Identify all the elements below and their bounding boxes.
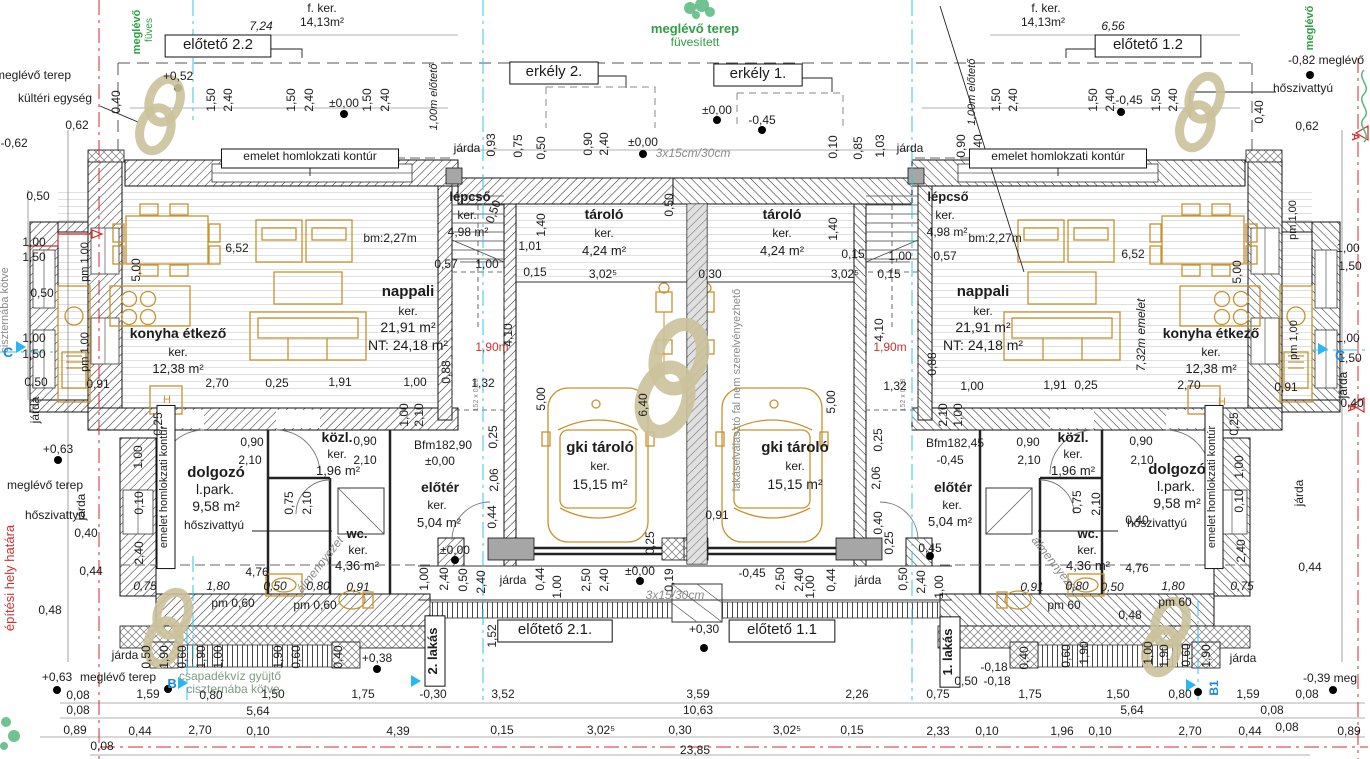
dim-label: 0,50 (30, 286, 54, 300)
dim-label: 0,62 (65, 118, 89, 132)
dim-label: 0,93 (484, 133, 498, 157)
dim-label: 2,10 (1130, 453, 1154, 467)
level: -0,18 (983, 674, 1011, 688)
dim-label: 1,00 (397, 403, 411, 427)
dim-label: 1,32 (883, 379, 907, 393)
dim-label: 1,00 (550, 575, 564, 599)
dim-label: 0,48 (1118, 608, 1142, 622)
room-label: lépcső (449, 189, 490, 204)
level: ±0,00 (625, 564, 655, 578)
axis-marker: A (1349, 133, 1361, 141)
dim-label: 1,50 (1086, 88, 1100, 112)
room-label: dolgozó (187, 464, 244, 481)
dim-label: 2,10 (1017, 453, 1041, 467)
dim-label: 2,10 (300, 491, 314, 515)
dim-label: 2,70 (188, 723, 212, 737)
dim-label: 2,70 (205, 376, 229, 390)
dim-label: 1,00 (417, 567, 431, 591)
dim-label: 0,25 (882, 531, 896, 555)
dim-label: 1,00 (22, 331, 46, 345)
note: építési hely határa (2, 524, 17, 631)
roof-area-value: 14,13m² (1021, 15, 1065, 29)
dim-label: 1,52 (485, 624, 499, 648)
dim-label: 2,40 (597, 568, 611, 592)
dim-label: 0,44 (533, 567, 547, 591)
dim-label: 0,60 (1179, 643, 1193, 667)
dim-label: 0,91 (705, 508, 729, 522)
room-label: lépcső (927, 189, 968, 204)
dim-label: 1,00 (1336, 241, 1360, 255)
dim-label: 2,40 (1166, 88, 1180, 112)
dim-label: 1,50 (989, 88, 1003, 112)
dim-label: 0,90 (581, 132, 595, 156)
dim-label: 0,08 (1260, 703, 1284, 717)
room-label: közl. (1057, 429, 1088, 445)
dim-label: 0,08 (66, 703, 90, 717)
level: -0,45 (936, 453, 964, 467)
callout: emelet homlokzati kontúr (243, 149, 376, 163)
dim-label: 0,25 (871, 428, 885, 452)
note: járda (854, 573, 882, 587)
dim-label: 1,00 (932, 575, 946, 599)
dim-label: 0,75 (1070, 490, 1084, 514)
room-ker: ker. (1201, 345, 1220, 359)
dim-label: 3,02⁵ (773, 723, 801, 737)
level: -0,30 (419, 687, 447, 701)
dim-label: 5,00 (129, 258, 143, 282)
dim-label: 0,88 (925, 352, 939, 376)
level: Bfm182,45 (926, 436, 984, 450)
dim-label: 1,00 (403, 375, 427, 389)
room-ker: ker. (772, 226, 791, 240)
dim-label: 2,10 (353, 453, 377, 467)
dim-label: 0,90 (353, 434, 377, 448)
dim-label: 2,10 (936, 403, 950, 427)
dim-label: 7,24 (249, 19, 273, 33)
dim-label: 1,50 (284, 88, 298, 112)
room-area: 5,04 m² (928, 514, 973, 529)
dim-label: 3,02⁵ (831, 267, 859, 281)
room-area: 4,24 m² (582, 243, 627, 258)
dim-label: pm 1,00 (1288, 320, 1300, 360)
dim-label: 5,64 (246, 704, 270, 718)
dim-label: 0,60 (289, 645, 303, 669)
dim-label: 4,10 (872, 318, 886, 342)
dim-label: 0,80 (1065, 579, 1089, 593)
dim-label: 1,91 (1043, 378, 1067, 392)
dim-label: 0,10 (246, 724, 270, 738)
dim-label: 0,57 (933, 249, 957, 263)
dim-label: 2,70 (1178, 724, 1202, 738)
dim-label: 0,60 (175, 645, 189, 669)
room-area: NT: 24,18 m² (943, 337, 1023, 353)
dim-label: 0,10 (132, 491, 146, 515)
dim-label: 6,40 (636, 393, 650, 417)
note: járda (28, 396, 42, 424)
room-label: wc. (1077, 526, 1099, 541)
dim-label: 0,91 (1274, 380, 1298, 394)
dim-label: 1,50 (360, 88, 374, 112)
dim-label: 0,80 (1168, 687, 1192, 701)
dim-label: 2,40 (132, 541, 146, 565)
axis-marker: C (1335, 347, 1345, 363)
dim-label: 0,40 (871, 511, 885, 535)
note: járda (1229, 651, 1257, 665)
dim-label: 4,76 (245, 565, 269, 579)
room-area: 9,58 m² (1153, 495, 1201, 511)
note: kültéri egység (18, 91, 92, 105)
dim-label: 0,90 (954, 134, 968, 158)
room-area: 21,91 m² (955, 319, 1011, 335)
dim-label: 1,80 (1161, 579, 1185, 593)
dim-label: 2,70 (1177, 378, 1201, 392)
dim-label: 2,10 (238, 453, 262, 467)
room-label: gki tároló (761, 439, 829, 456)
note: ciszternába kötve (0, 267, 11, 353)
dim-label: 0,10 (1088, 724, 1112, 738)
dim-label: 2,06 (487, 468, 501, 492)
room-label: dolgozó (1148, 461, 1205, 478)
dim-label: 2,40 (1006, 88, 1020, 112)
dim-label: 0,48 (38, 603, 62, 617)
level: -0,82 meglévő (1288, 53, 1364, 67)
room-area: 12,38 m² (1185, 361, 1237, 376)
level: ±0,00 (329, 96, 359, 110)
dim-label: 0,91 (86, 377, 110, 391)
dim-label: 0,15 (877, 267, 901, 281)
note: bm:2,27m (363, 231, 416, 245)
dim-label: 0,90 (1016, 435, 1040, 449)
dim-label: 0,88 (439, 360, 453, 384)
room-ker: ker. (973, 304, 992, 318)
dim-label: pm 60 (1158, 595, 1192, 609)
level: ±0,00 (425, 454, 455, 468)
dim-label: 1,90 (194, 645, 208, 669)
dim-label: 1,75 (351, 687, 375, 701)
dim-label: 0,50 (954, 674, 978, 688)
callout: előtető 2.1. (518, 621, 592, 638)
room-label: előtér (934, 479, 973, 495)
level: +0,30 (689, 622, 720, 636)
dim-label: 1,03 (873, 134, 887, 158)
dim-label: 1,32 (471, 376, 495, 390)
dim-label: 0,15 (523, 265, 547, 279)
dim-label: 0,44 (1298, 560, 1322, 574)
dim-label: 5,00 (534, 387, 548, 411)
dim-label: 1,80 (206, 579, 230, 593)
room-area: 21,91 m² (380, 319, 436, 335)
dim-label: 5,64 (1120, 703, 1144, 717)
note: füvesített (671, 35, 720, 49)
callout: előtető 2.2 (183, 36, 253, 53)
room-area: 1,96 m² (1051, 463, 1096, 478)
note: bm:2,27m (968, 231, 1021, 245)
floor-plan-sheet: f. ker.14,13m²7,24előtető 2.2meglévőfüve… (0, 0, 1370, 759)
dim-label: 0,75 (926, 687, 950, 701)
dim-label: 0,08 (66, 688, 90, 702)
dim-label: 0,30 (698, 267, 722, 281)
dim-label: 0,25 (1074, 378, 1098, 392)
dim-label: 0,40 (1252, 100, 1266, 124)
room-ker: ker. (457, 208, 476, 222)
level: 1,90m (873, 340, 906, 354)
dim-label: 0,40 (1017, 646, 1031, 670)
dim-label: 23,85 (680, 743, 710, 757)
dim-label: 0,50 (662, 193, 676, 217)
room-ker: ker. (935, 208, 954, 222)
callout: emelet homlokzati kontúr (991, 149, 1124, 163)
room-label: előtér (421, 479, 460, 495)
dim-label: 1,00 (22, 235, 46, 249)
level: -0,62 (0, 136, 28, 150)
dim-label: pm 60 (1047, 598, 1081, 612)
level: -0,45 (748, 113, 776, 127)
dim-label: 2,40 (221, 88, 235, 112)
dim-label: 0,10 (826, 135, 840, 159)
dim-label: 0,62 (1295, 119, 1319, 133)
room-ker: ker. (1077, 543, 1096, 557)
dim-label: 4,76 (1125, 561, 1149, 575)
dim-label: 2,40 (437, 567, 451, 591)
dim-label: 1,96 (1050, 724, 1074, 738)
room-ker: ker. (1063, 447, 1082, 461)
dim-label: 1,90 (1199, 644, 1213, 668)
dim-label: 0,91 (346, 580, 369, 594)
dim-label: 5,00 (824, 390, 838, 414)
axis-marker: A (1345, 404, 1357, 412)
dim-label: 0,85 (851, 136, 865, 160)
level: ±0,00 (702, 103, 732, 117)
roof-area-value: 14,13m² (300, 15, 344, 29)
dim-label: 1,59 (1236, 687, 1260, 701)
dim-label: 5,00 (1230, 260, 1244, 284)
note: járda (111, 648, 139, 662)
callout: erkély 1. (730, 65, 787, 82)
dim-label: 0,80 (306, 579, 330, 593)
dim-label: 1,50 (22, 347, 46, 361)
dim-label: 0,15 (490, 723, 514, 737)
room-area: 4,98 m² (448, 225, 489, 239)
dim-label: pm 1,00 (79, 332, 91, 372)
room-ker: ker. (590, 459, 609, 473)
dim-label: 1,59 (136, 687, 160, 701)
level: -0,45 (1115, 93, 1143, 107)
room-area: 4,24 m² (760, 243, 805, 258)
room-area: 4,98 m² (927, 225, 968, 239)
dim-label: 0,75 (133, 579, 157, 593)
room-label: tároló (763, 206, 802, 222)
dim-label: 2,06 (869, 466, 883, 490)
note: járda (896, 141, 924, 155)
callout: emelet homlokzati kontúr (158, 426, 170, 549)
dim-label: 0,50 (534, 136, 548, 160)
room-ker: ker. (398, 304, 417, 318)
note: meglévő terep (7, 478, 83, 492)
dim-label: 10,63 (683, 703, 713, 717)
room-label: konyha étkező (1163, 325, 1259, 341)
dim-label: 0,50 (26, 189, 50, 203)
dim-label: 0,08 (1275, 720, 1299, 734)
dim-label: 2,10 (1089, 492, 1103, 516)
dim-label: 2,26 (845, 687, 869, 701)
room-label: tároló (585, 206, 624, 222)
callout: erkély 2. (526, 63, 583, 80)
axis-marker: C (3, 344, 13, 360)
room-area: 15,15 m² (572, 476, 628, 492)
axis-marker: B1 (1207, 680, 1221, 696)
room-area: 9,58 m² (192, 498, 240, 514)
dim-label: 0,40 (74, 526, 98, 540)
note: járda (1336, 371, 1350, 399)
dim-label: 0,50 (24, 375, 48, 389)
dim-label: 0,89 (1337, 724, 1361, 738)
level: Bfm182,90 (414, 438, 472, 452)
dim-label: 0,90 (1129, 434, 1153, 448)
dim-label: 0,25 (1227, 412, 1241, 436)
dim-label: 0,15 (840, 723, 864, 737)
dim-label: 0,90 (240, 435, 264, 449)
note: járda (499, 573, 527, 587)
dim-label: 2,33 (926, 724, 950, 738)
room-ker: ker. (942, 498, 961, 512)
level: +0,63 (43, 442, 74, 456)
note: meglévő terep (0, 68, 71, 82)
room-area: 12,38 m² (152, 361, 204, 376)
dim-label: 0,10 (1232, 489, 1246, 513)
dim-label: 0,89 (63, 723, 87, 737)
dim-label: 0,91 (1020, 580, 1043, 594)
dim-label: 2,40 (597, 132, 611, 156)
room-label: wc. (346, 526, 368, 541)
dim-label: 1,00 (131, 445, 145, 469)
room-ker: ker. (594, 226, 613, 240)
dim-label: 0,44 (128, 724, 152, 738)
dim-label: 2,40 (1234, 539, 1248, 563)
dim-label: 3,52 (491, 687, 515, 701)
dim-label: 1,90 (157, 645, 171, 669)
note: 7,32m emelet (1134, 298, 1148, 371)
level: -0,18 (980, 660, 1008, 674)
dim-label: 1,90 (271, 645, 285, 669)
level: ±0,00 (628, 135, 658, 149)
level: +0,63 (42, 670, 73, 684)
dim-label: 0,60 (1059, 644, 1073, 668)
dim-label: 1,00 (951, 403, 965, 427)
dim-label: 2,40 (302, 88, 316, 112)
dim-label: 0,44 (79, 564, 103, 578)
dim-label: 1,01 (518, 239, 542, 253)
level: 1,90m (475, 340, 508, 354)
dim-label: 0,50 (139, 645, 153, 669)
dim-label: 1,50 (1149, 88, 1163, 112)
note: meglévő (131, 9, 143, 54)
dim-label: 1,00 (1141, 641, 1155, 665)
appliance-mark: H (1218, 396, 1226, 408)
dim-label: 4,39 (386, 724, 410, 738)
note: hőszivattyú (184, 518, 244, 532)
room-ker: ker. (785, 459, 804, 473)
room-label: közl. (321, 429, 352, 445)
room-area: NT: 24,18 m² (368, 337, 448, 353)
dim-label: 0,25 (151, 412, 165, 436)
note: csapadékvíz gyüjtő (179, 669, 281, 683)
dim-label: 1,00 (960, 379, 984, 393)
dim-label: 1,90 (1157, 644, 1171, 668)
unit-label: 2. lakás (425, 628, 440, 675)
dim-label: 1,00 (803, 575, 817, 599)
room-ker: ker. (327, 447, 346, 461)
dim-label: 0,40 (109, 90, 123, 114)
dim-label: 1,50 (261, 687, 285, 701)
dim-label: 1,75 (1018, 687, 1042, 701)
dim-label: 0,10 (975, 724, 999, 738)
dim-label: 1,00 (1232, 455, 1246, 479)
note: 1,00m előtető (966, 58, 978, 126)
dim-label: 0,45 (918, 541, 942, 555)
note: 1,00m előtető (428, 63, 440, 131)
dim-label: 0,57 (434, 257, 458, 271)
level: +0,38 (362, 651, 393, 665)
note: füves (144, 18, 155, 42)
dim-label: 3,02⁵ (587, 723, 615, 737)
level: ±0,00 (440, 543, 470, 557)
dim-label: 1,00 (211, 645, 225, 669)
dim-label: 0,40 (1125, 513, 1149, 527)
room-label: konyha étkező (130, 325, 226, 341)
room-label: nappali (957, 283, 1010, 300)
dim-label: 0,44 (485, 505, 499, 529)
dim-label: 0,25 (265, 376, 289, 390)
dim-label: 1,50 (1338, 259, 1362, 273)
level: +0,52 (163, 69, 194, 83)
dim-label: 1,40 (826, 217, 840, 241)
roof-area-label: f. ker. (307, 1, 336, 15)
room-ker: l.park. (1157, 478, 1195, 494)
dim-label: 3,02⁵ (589, 267, 617, 281)
note: járda (453, 141, 481, 155)
room-area: 15,15 m² (767, 476, 823, 492)
dim-label: 0,08 (1295, 687, 1319, 701)
dim-label: pm 0,60 (293, 598, 337, 612)
note: 3x15/30cm (646, 588, 705, 602)
dim-label: 0,75 (511, 134, 525, 158)
dim-label: 1,40 (534, 213, 548, 237)
dim-label: pm 1,00 (1287, 200, 1299, 240)
dim-label: 0,80 (199, 688, 223, 702)
dim-label: 0,50 (263, 579, 287, 593)
dim-label: 0,30 (668, 723, 692, 737)
callout: előtető 1.1 (747, 621, 817, 638)
dim-label: 1,90 (1077, 641, 1091, 665)
dim-label: 0,50 (896, 567, 910, 591)
room-area: 4,36 m² (1066, 558, 1111, 573)
callout: előtető 1.2 (1113, 36, 1183, 53)
room-area: 5,04 m² (417, 515, 462, 530)
note: járda (1292, 479, 1306, 507)
dim-label: 2,40 (914, 570, 928, 594)
level: -0,39 meg (1303, 671, 1357, 685)
floor-plan-drawing: f. ker.14,13m²7,24előtető 2.2meglévőfüve… (0, 0, 1370, 759)
dim-label: pm 1,00 (79, 242, 91, 282)
axis-marker: B (167, 676, 176, 691)
level: -0,45 (738, 566, 766, 580)
dim-label: 0,40 (331, 645, 345, 669)
dim-label: 1,00 (888, 249, 912, 263)
dim-label: 0,44 (1238, 724, 1262, 738)
dim-label: pm 0,60 (211, 596, 255, 610)
dim-label: 0,50 (1100, 580, 1124, 594)
note: hőszivattyú (1273, 81, 1333, 95)
